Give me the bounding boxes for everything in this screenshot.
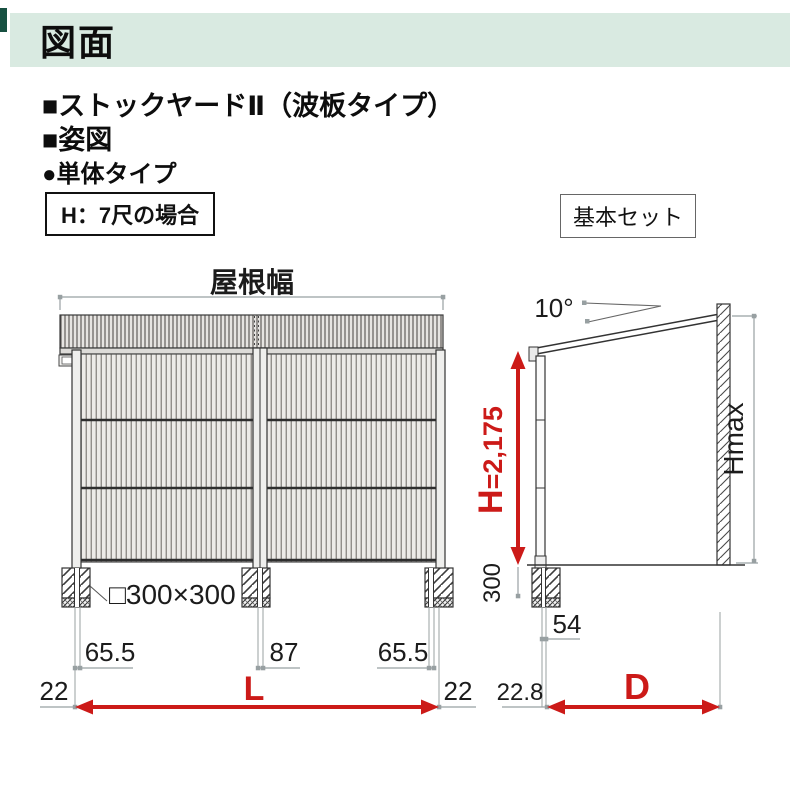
dim-dot [432, 666, 437, 671]
arrowhead-left [75, 700, 93, 715]
dim-dot [73, 666, 78, 671]
roof-angle-label: 10° [534, 293, 573, 323]
roof-panel [60, 315, 443, 348]
front-view: 屋根幅 [40, 267, 476, 715]
side-front-post [536, 356, 545, 568]
arrowhead-left [547, 700, 565, 715]
right-footing [425, 568, 453, 607]
right-post [436, 350, 445, 572]
dim-dot [540, 637, 545, 642]
dim-center-gap: 87 [270, 637, 299, 667]
angle-wedge-bottom [588, 306, 661, 322]
post-base-detail [535, 556, 546, 568]
roof-slope-bottom [531, 321, 717, 356]
foundation-size-label: □300×300 [109, 579, 236, 610]
dim-dot [585, 319, 590, 324]
dim-height-label: H=2,175 [472, 406, 510, 514]
arrowhead-right [702, 700, 720, 715]
dim-dot [78, 666, 83, 671]
dim-left-edge: 22 [40, 676, 69, 706]
dim-right-offset: 65.5 [378, 637, 429, 667]
dim-width-symbol: L [244, 670, 265, 708]
eave-beam [60, 348, 443, 354]
arrowhead-up [511, 351, 526, 369]
dim-left-offset: 65.5 [85, 637, 136, 667]
technical-drawing: 屋根幅 [0, 0, 800, 800]
dim-dot [58, 295, 63, 300]
roof-width-label: 屋根幅 [210, 267, 294, 298]
dim-max-height-label: Hmax [718, 402, 749, 475]
dim-dot [516, 594, 521, 599]
left-footing [62, 568, 90, 607]
arrowhead-right [421, 700, 439, 715]
dim-depth-symbol: D [624, 666, 650, 707]
foundation-leader-line [90, 586, 107, 601]
arrowhead-down [511, 547, 526, 565]
dim-dot [544, 637, 549, 642]
dim-foundation-depth: 300 [479, 563, 506, 603]
drawing-page: 図面 ■ストックヤードⅡ（波板タイプ） ■姿図 ●単体タイプ H：7尺の場合 基… [0, 0, 800, 800]
dim-dot [752, 559, 757, 564]
dim-right-edge: 22 [444, 676, 473, 706]
center-footing [242, 568, 270, 607]
left-post [72, 350, 81, 572]
dim-dot [441, 295, 446, 300]
side-footing [532, 568, 560, 607]
side-view: 10° H=2,175 300 [472, 293, 758, 715]
dim-height-symbol: H [472, 489, 510, 514]
left-bracket-detail [62, 357, 72, 364]
angle-wedge-top [585, 303, 661, 306]
dim-post-offset: 54 [553, 609, 582, 639]
dim-height-value: =2,175 [478, 406, 508, 489]
dim-dot [582, 301, 587, 306]
dim-front-edge: 22.8 [497, 679, 544, 706]
dim-dot [752, 314, 757, 319]
